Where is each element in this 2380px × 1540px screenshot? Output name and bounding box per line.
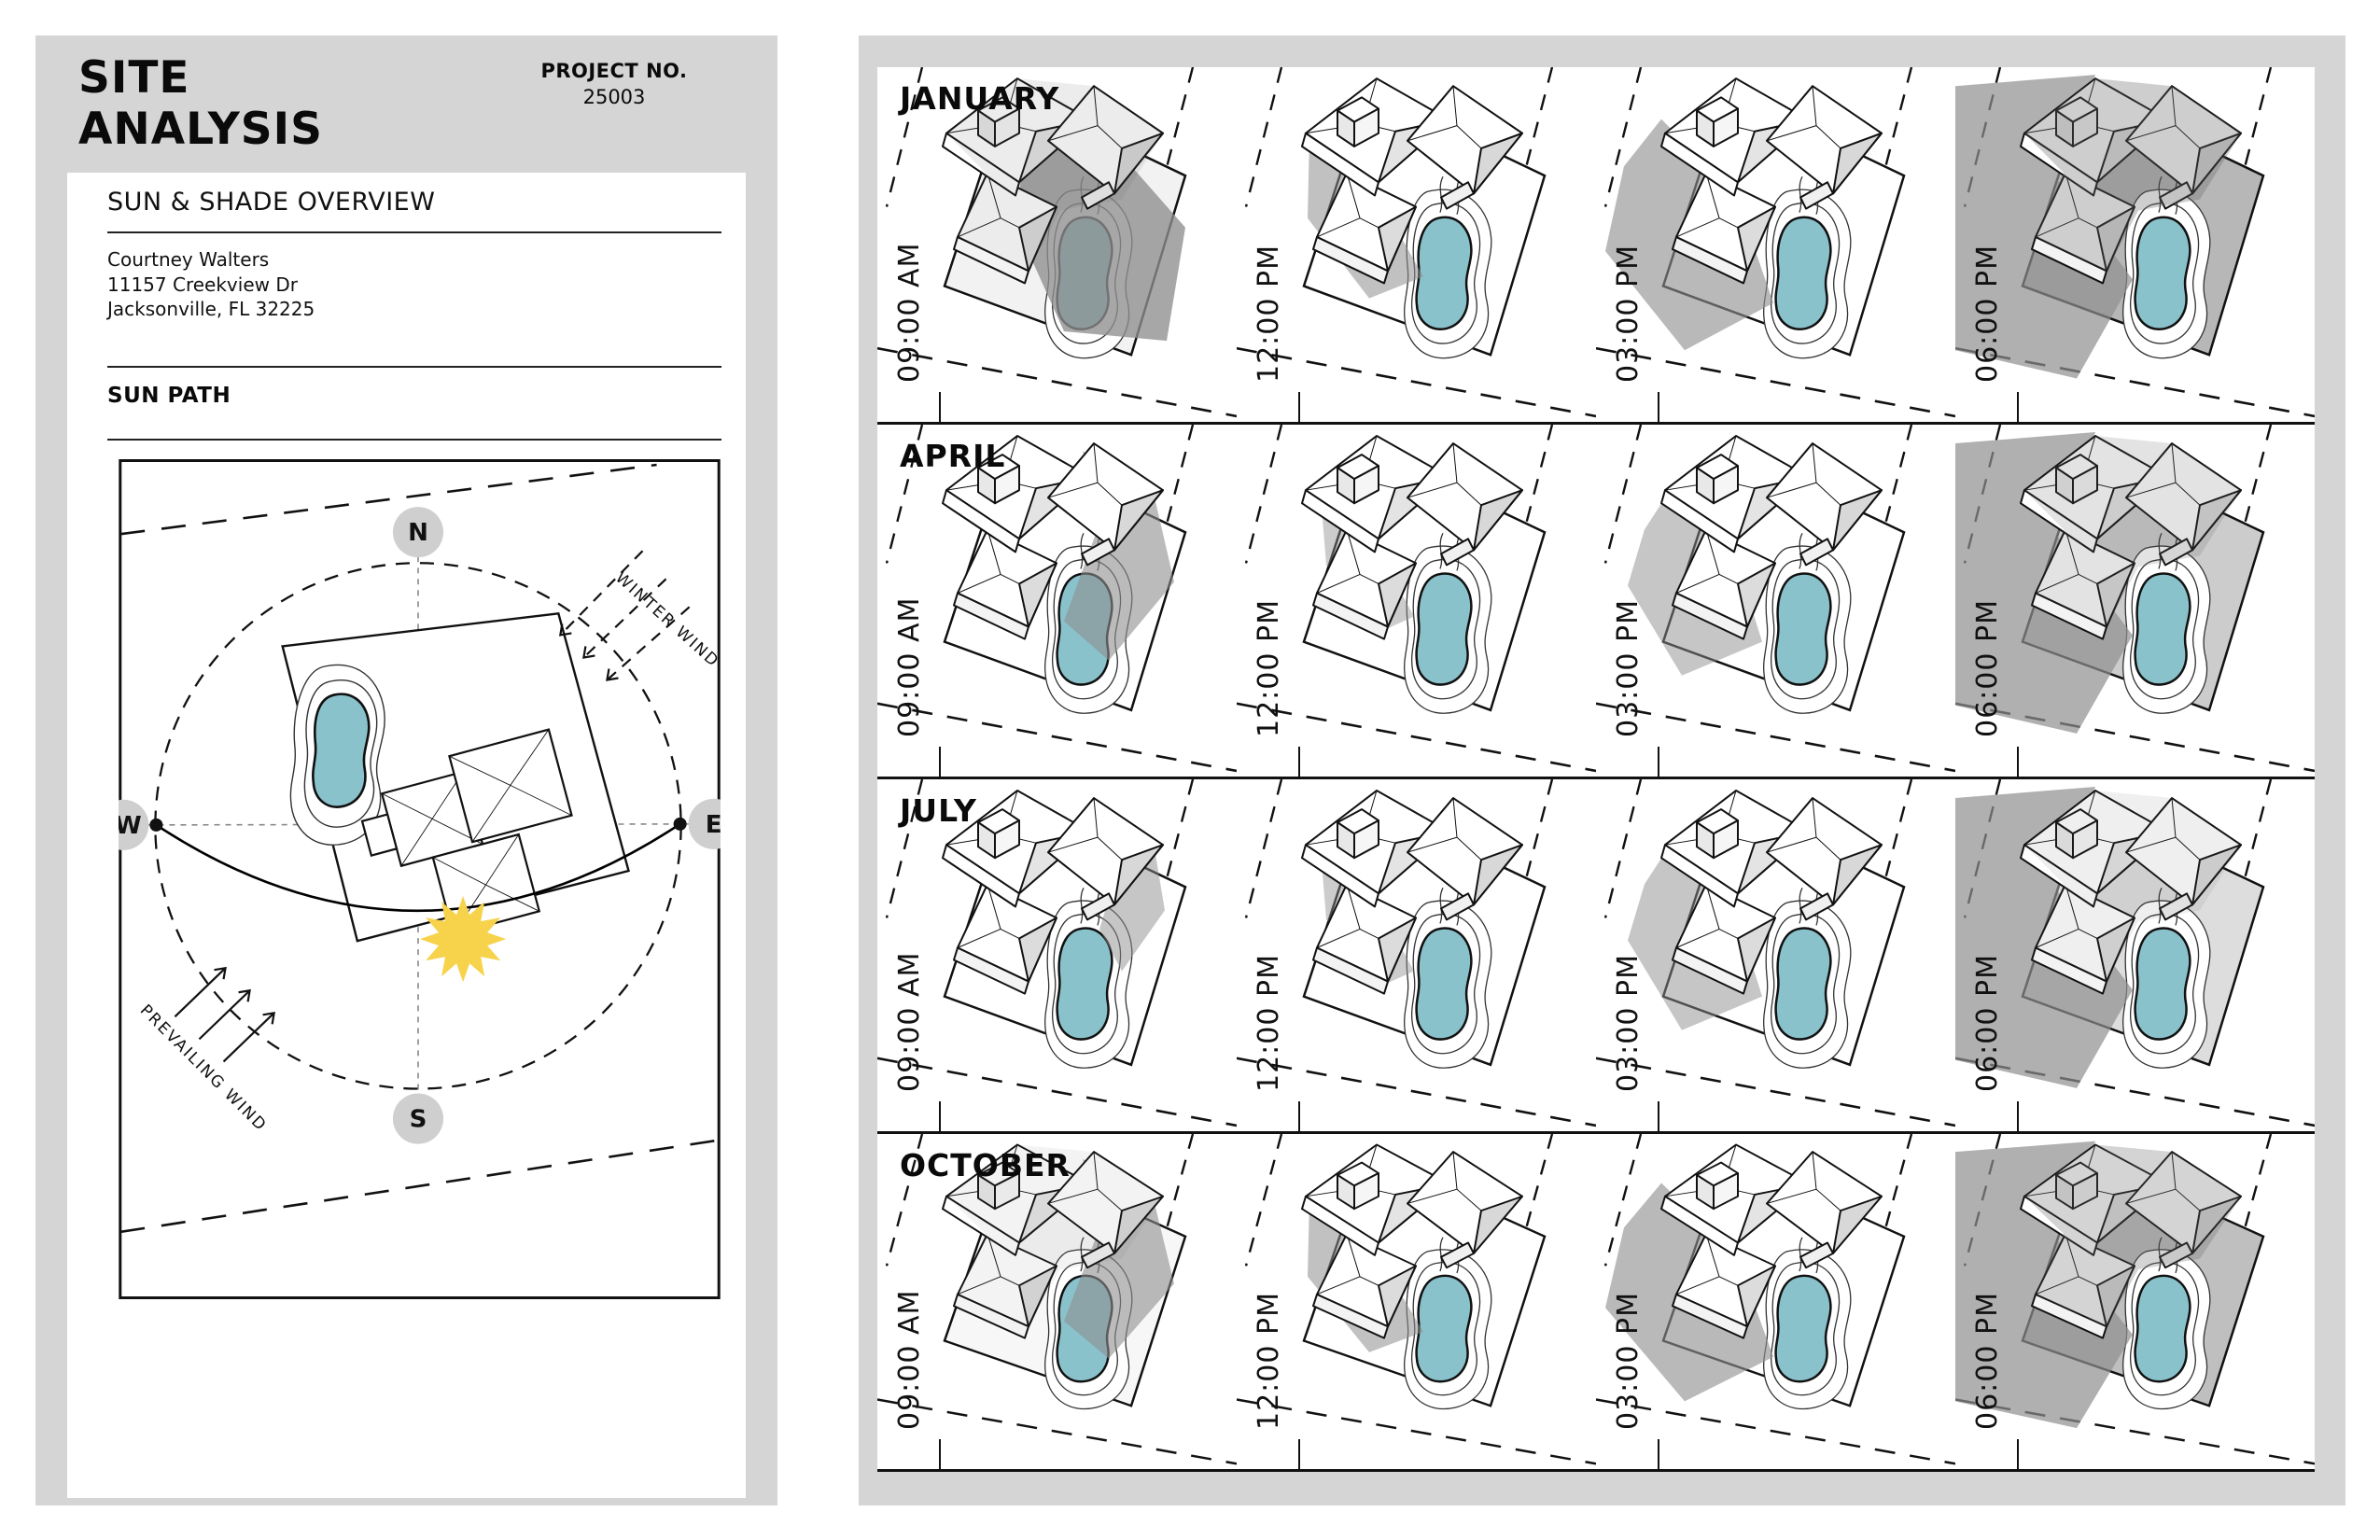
client-name: Courtney Walters (107, 247, 315, 273)
time-tick (2017, 1101, 2019, 1131)
time-label: 03:00 PM (1612, 599, 1645, 737)
time-label: 09:00 AM (893, 597, 926, 737)
east-point (674, 818, 687, 831)
time-tick (939, 392, 941, 422)
time-tick (1658, 747, 1659, 777)
sun-study-cell (1955, 1134, 2315, 1469)
time-label: 12:00 PM (1253, 599, 1285, 737)
time-label: 06:00 PM (1971, 245, 2004, 383)
study-row-cells (877, 1134, 2315, 1469)
divider (107, 231, 721, 233)
title-block-sheet: SITE ANALYSIS PROJECT NO. 25003 SUN & SH… (35, 35, 777, 1505)
month-label: APRIL (900, 438, 1005, 474)
divider (107, 439, 721, 441)
sun-study-cell (1237, 425, 1596, 777)
time-tick (1298, 1101, 1300, 1131)
sun-study-sheet: JANUARY09:00 AM12:00 PM03:00 PM06:00 PM (859, 35, 2345, 1505)
time-label: 06:00 PM (1971, 1292, 2004, 1430)
time-tick (1658, 392, 1659, 422)
sun-study-cell (1237, 779, 1596, 1131)
study-row-cells (877, 779, 2315, 1131)
time-label: 09:00 AM (893, 243, 926, 383)
sun-study-cell (877, 67, 1237, 422)
study-row-cells (877, 67, 2315, 422)
compass-n: N (408, 519, 428, 547)
time-tick (1658, 1439, 1659, 1469)
sun-study-cell (1237, 1134, 1596, 1469)
site-analysis-sheet: SITE ANALYSIS PROJECT NO. 25003 SUN & SH… (0, 0, 2380, 1540)
sun-study-cell (1596, 779, 1955, 1131)
time-label: 12:00 PM (1253, 245, 1285, 383)
client-address-line1: 11157 Creekview Dr (107, 273, 315, 298)
time-label: 03:00 PM (1612, 954, 1645, 1092)
month-label: OCTOBER (900, 1147, 1071, 1183)
client-info: Courtney Walters 11157 Creekview Dr Jack… (107, 247, 315, 322)
sun-path-diagram: WINTER WIND PREVAILING WIND (119, 459, 721, 1299)
study-row-april: APRIL09:00 AM12:00 PM03:00 PM06:00 PM (877, 425, 2315, 779)
time-tick (1298, 747, 1300, 777)
sun-study-cell (1955, 425, 2315, 777)
page-title-line1: SITE (78, 52, 323, 104)
sun-study-cell (877, 779, 1237, 1131)
time-tick (939, 747, 941, 777)
sun-study-cell (1596, 67, 1955, 422)
time-tick (1298, 1439, 1300, 1469)
time-tick (2017, 392, 2019, 422)
sun-study-cell (1596, 1134, 1955, 1469)
compass-w: W (119, 812, 142, 840)
sun-study-grid: JANUARY09:00 AM12:00 PM03:00 PM06:00 PM (877, 67, 2315, 1472)
time-tick (2017, 747, 2019, 777)
time-tick (939, 1439, 941, 1469)
compass-e: E (706, 811, 721, 839)
page-title: SITE ANALYSIS (78, 52, 323, 156)
time-label: 06:00 PM (1971, 599, 2004, 737)
study-row-october: OCTOBER09:00 AM12:00 PM03:00 PM06:00 PM (877, 1134, 2315, 1472)
sun-study-cell (877, 425, 1237, 777)
time-label: 12:00 PM (1253, 1292, 1285, 1430)
client-address-line2: Jacksonville, FL 32225 (107, 297, 315, 322)
sun-study-cell (1955, 779, 2315, 1131)
west-point (149, 819, 162, 832)
study-row-july: JULY09:00 AM12:00 PM03:00 PM06:00 PM (877, 779, 2315, 1134)
time-tick (1658, 1101, 1659, 1131)
time-label: 12:00 PM (1253, 954, 1285, 1092)
time-label: 09:00 AM (893, 1290, 926, 1430)
time-label: 09:00 AM (893, 952, 926, 1092)
time-label: 03:00 PM (1612, 245, 1645, 383)
sun-path-section-title: SUN PATH (107, 384, 231, 408)
compass-s: S (410, 1106, 427, 1134)
page-title-line2: ANALYSIS (78, 104, 323, 155)
sun-study-cell (877, 1134, 1237, 1469)
study-row-cells (877, 425, 2315, 777)
month-label: JULY (900, 792, 977, 829)
sun-study-cell (1237, 67, 1596, 422)
project-number-block: PROJECT NO. 25003 (427, 60, 801, 108)
project-number-value: 25003 (427, 86, 801, 108)
time-tick (1298, 392, 1300, 422)
overview-card: SUN & SHADE OVERVIEW Courtney Walters 11… (67, 173, 746, 1498)
time-label: 06:00 PM (1971, 954, 2004, 1092)
overview-title: SUN & SHADE OVERVIEW (107, 188, 435, 217)
project-number-label: PROJECT NO. (427, 60, 801, 82)
sun-study-cell (1596, 425, 1955, 777)
time-tick (2017, 1439, 2019, 1469)
divider (107, 366, 721, 368)
sun-study-cell (1955, 67, 2315, 422)
time-label: 03:00 PM (1612, 1292, 1645, 1430)
study-row-january: JANUARY09:00 AM12:00 PM03:00 PM06:00 PM (877, 67, 2315, 425)
month-label: JANUARY (900, 80, 1059, 117)
time-tick (939, 1101, 941, 1131)
